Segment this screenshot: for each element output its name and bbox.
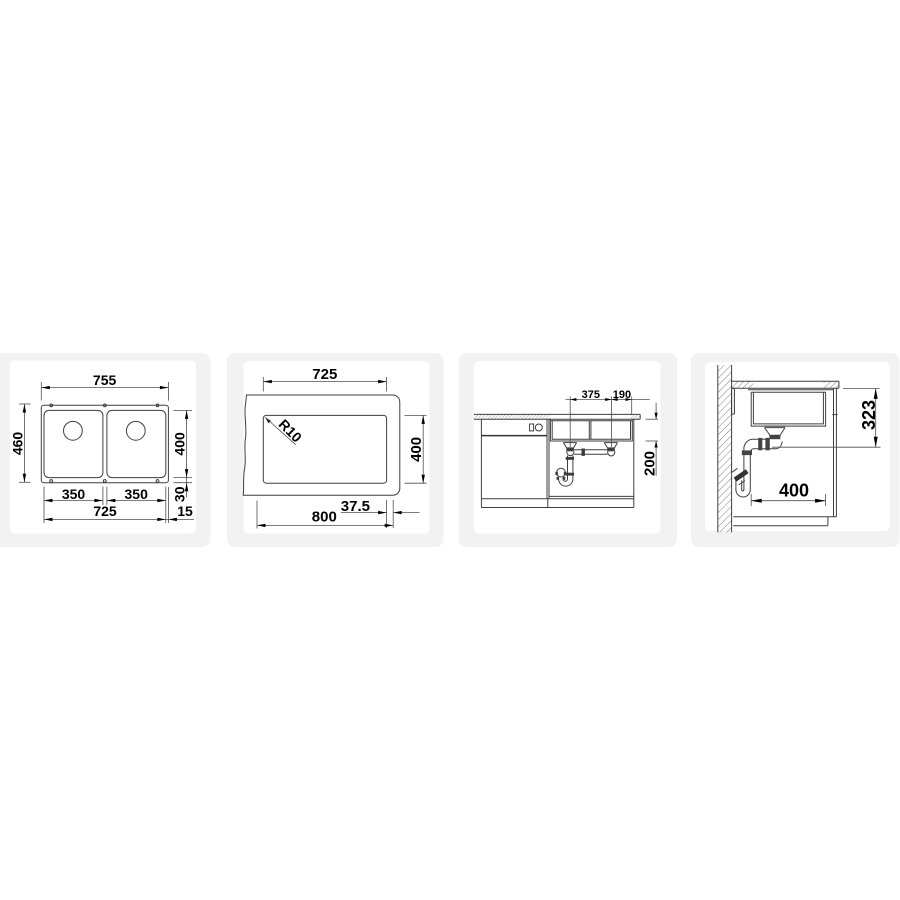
svg-text:460: 460 — [9, 432, 25, 456]
svg-text:30: 30 — [171, 486, 187, 502]
svg-text:755: 755 — [93, 372, 117, 388]
svg-text:350: 350 — [62, 486, 86, 502]
svg-text:400: 400 — [171, 432, 187, 456]
svg-text:400: 400 — [779, 481, 809, 501]
svg-text:400: 400 — [408, 437, 425, 462]
svg-text:725: 725 — [93, 503, 117, 519]
svg-text:15: 15 — [177, 503, 193, 519]
svg-text:350: 350 — [125, 486, 149, 502]
svg-text:800: 800 — [312, 508, 337, 525]
svg-text:725: 725 — [312, 366, 337, 383]
